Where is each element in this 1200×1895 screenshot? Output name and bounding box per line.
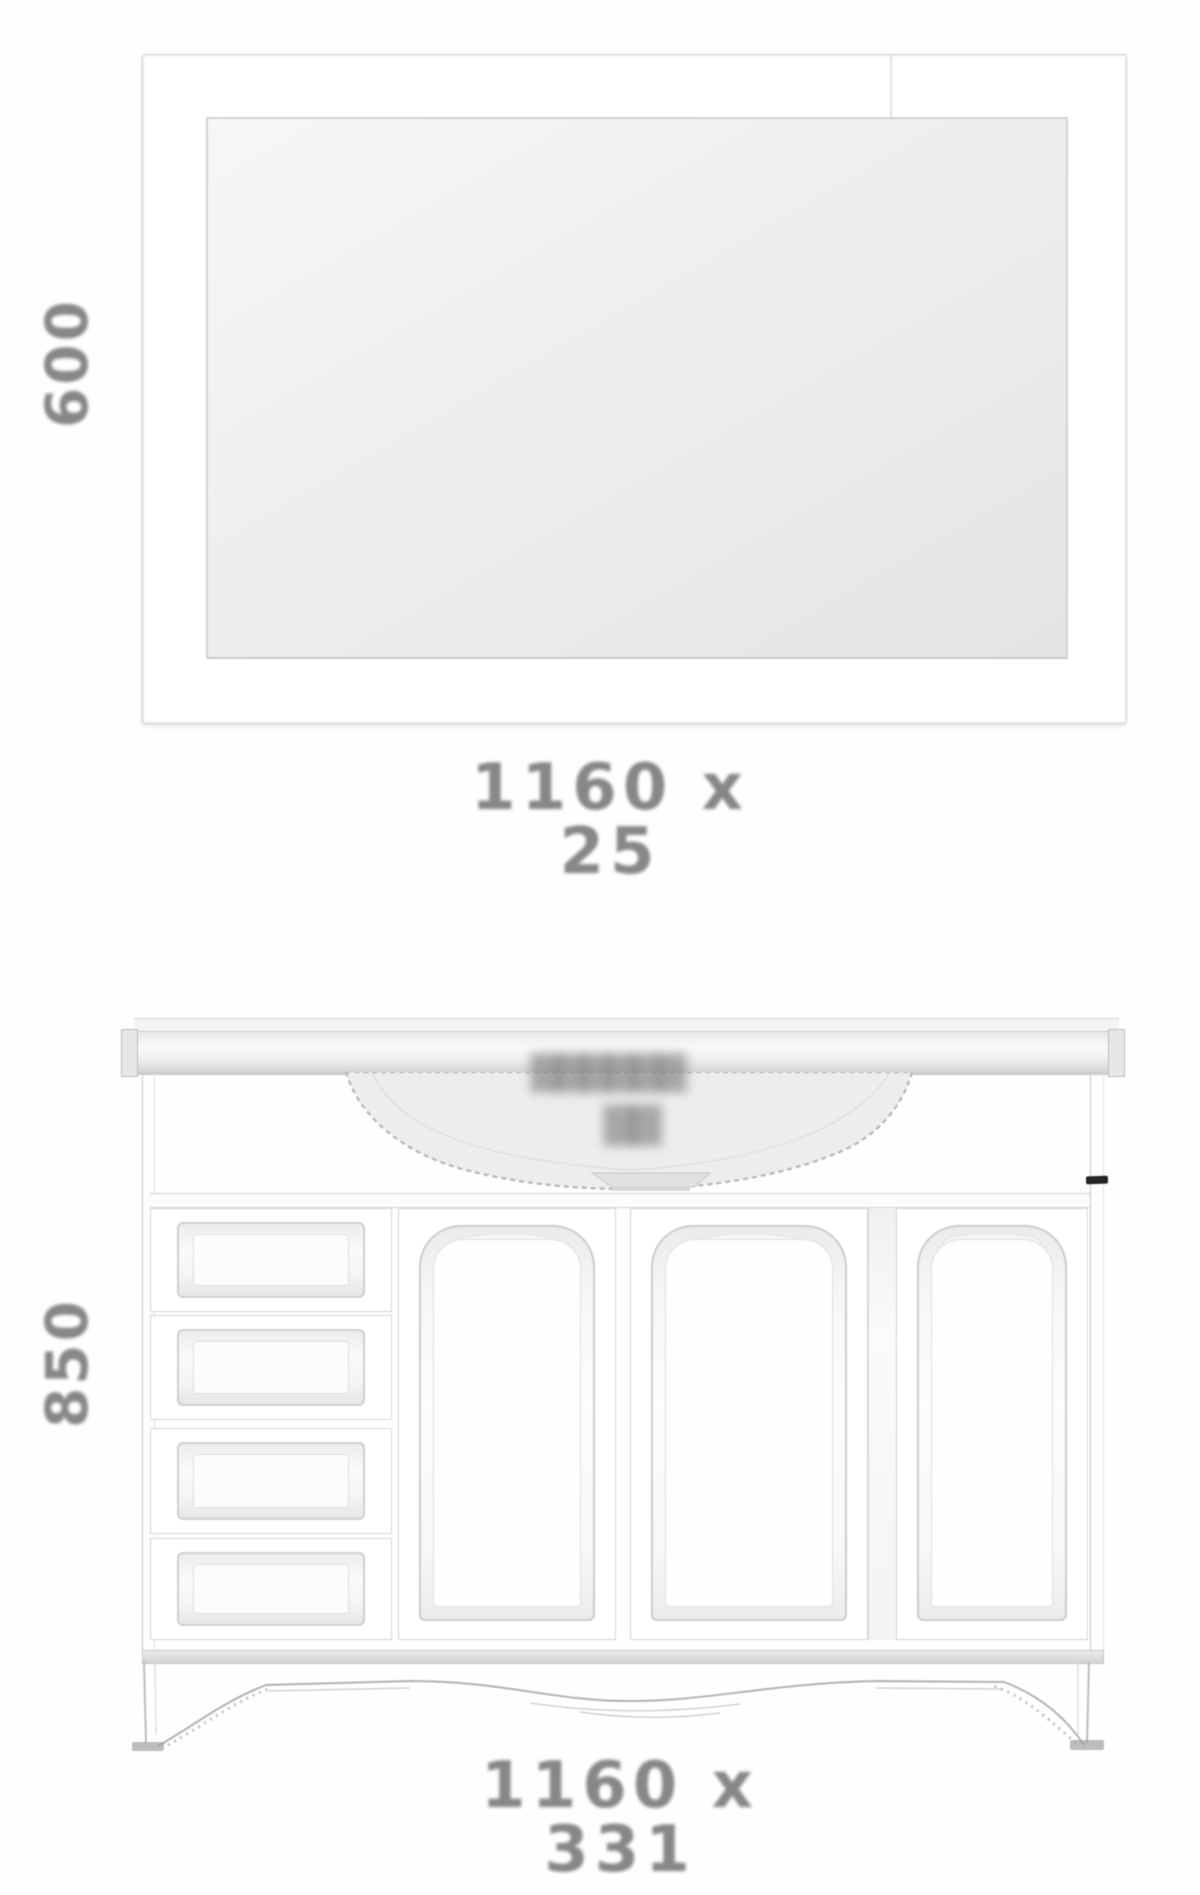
- mirror-size-label: 1160 x 25: [410, 756, 810, 884]
- door-arch-panel: [419, 1225, 595, 1621]
- door-left: [398, 1208, 616, 1640]
- vanity-size-label: 1160 x 331: [400, 1754, 840, 1882]
- right-foot: [1070, 1740, 1104, 1750]
- drawer-front-3: [150, 1428, 392, 1534]
- drawer-panel: [177, 1329, 365, 1406]
- drawer-front-1: [150, 1208, 392, 1312]
- cabinet-right-side: [1090, 1073, 1104, 1651]
- drawer-panel-inner: [193, 1234, 349, 1286]
- drawer-panel-inner: [193, 1564, 349, 1614]
- left-leg-inner-line: [155, 1662, 156, 1735]
- left-leg-outer-line: [144, 1662, 146, 1743]
- drawer-panel: [177, 1222, 365, 1298]
- scan-artifact-mark: [1086, 1176, 1108, 1185]
- drawer-panel-inner: [193, 1341, 349, 1394]
- right-leg-hatching: [994, 1686, 1076, 1743]
- drawer-front-4: [150, 1538, 392, 1640]
- countertop-right-cap: [1108, 1029, 1125, 1077]
- cabinet-stile: [868, 1208, 898, 1640]
- drawing-layer: [0, 0, 1200, 1895]
- drawer-panel-inner: [193, 1454, 349, 1508]
- door-arch-panel: [917, 1225, 1067, 1621]
- door-arch-panel-inner: [931, 1239, 1053, 1607]
- right-leg-outer-line: [1087, 1662, 1089, 1743]
- drawer-front-2: [150, 1315, 392, 1420]
- left-foot: [132, 1742, 164, 1751]
- vanity-height-label: 850: [38, 1283, 102, 1443]
- door-arch-panel-inner: [665, 1239, 833, 1607]
- scanned-furniture-drawing: ▇▇▇▇▇▇ ▇▇ 600 1160 x 25 850 1160 x 331: [0, 0, 1200, 1895]
- mirror-height-label: 600: [38, 283, 102, 443]
- sink-watermark-line1: ▇▇▇▇▇▇: [531, 1048, 682, 1092]
- cabinet-top-rail: [150, 1193, 1090, 1208]
- cabinet-apron: [118, 1655, 1123, 1760]
- sink-drain-pedestal: [592, 1173, 710, 1187]
- left-leg-hatching: [168, 1689, 268, 1745]
- door-right: [896, 1208, 1088, 1640]
- door-arch-panel-inner: [433, 1239, 581, 1607]
- mirror-frame: [142, 54, 1127, 724]
- door-center: [630, 1208, 868, 1640]
- drawer-column: [150, 1208, 392, 1640]
- mirror-frame-seam: [890, 55, 892, 117]
- sink-watermark-line2: ▇▇: [604, 1100, 658, 1146]
- drawer-panel: [177, 1442, 365, 1520]
- drawer-panel: [177, 1552, 365, 1626]
- door-arch-panel: [651, 1225, 847, 1621]
- mirror-glass: [206, 117, 1068, 659]
- apron-center-arcs: [530, 1703, 740, 1717]
- apron-second-line: [268, 1688, 1002, 1691]
- sink-drain-base: [612, 1186, 690, 1191]
- countertop-left-cap: [121, 1029, 138, 1077]
